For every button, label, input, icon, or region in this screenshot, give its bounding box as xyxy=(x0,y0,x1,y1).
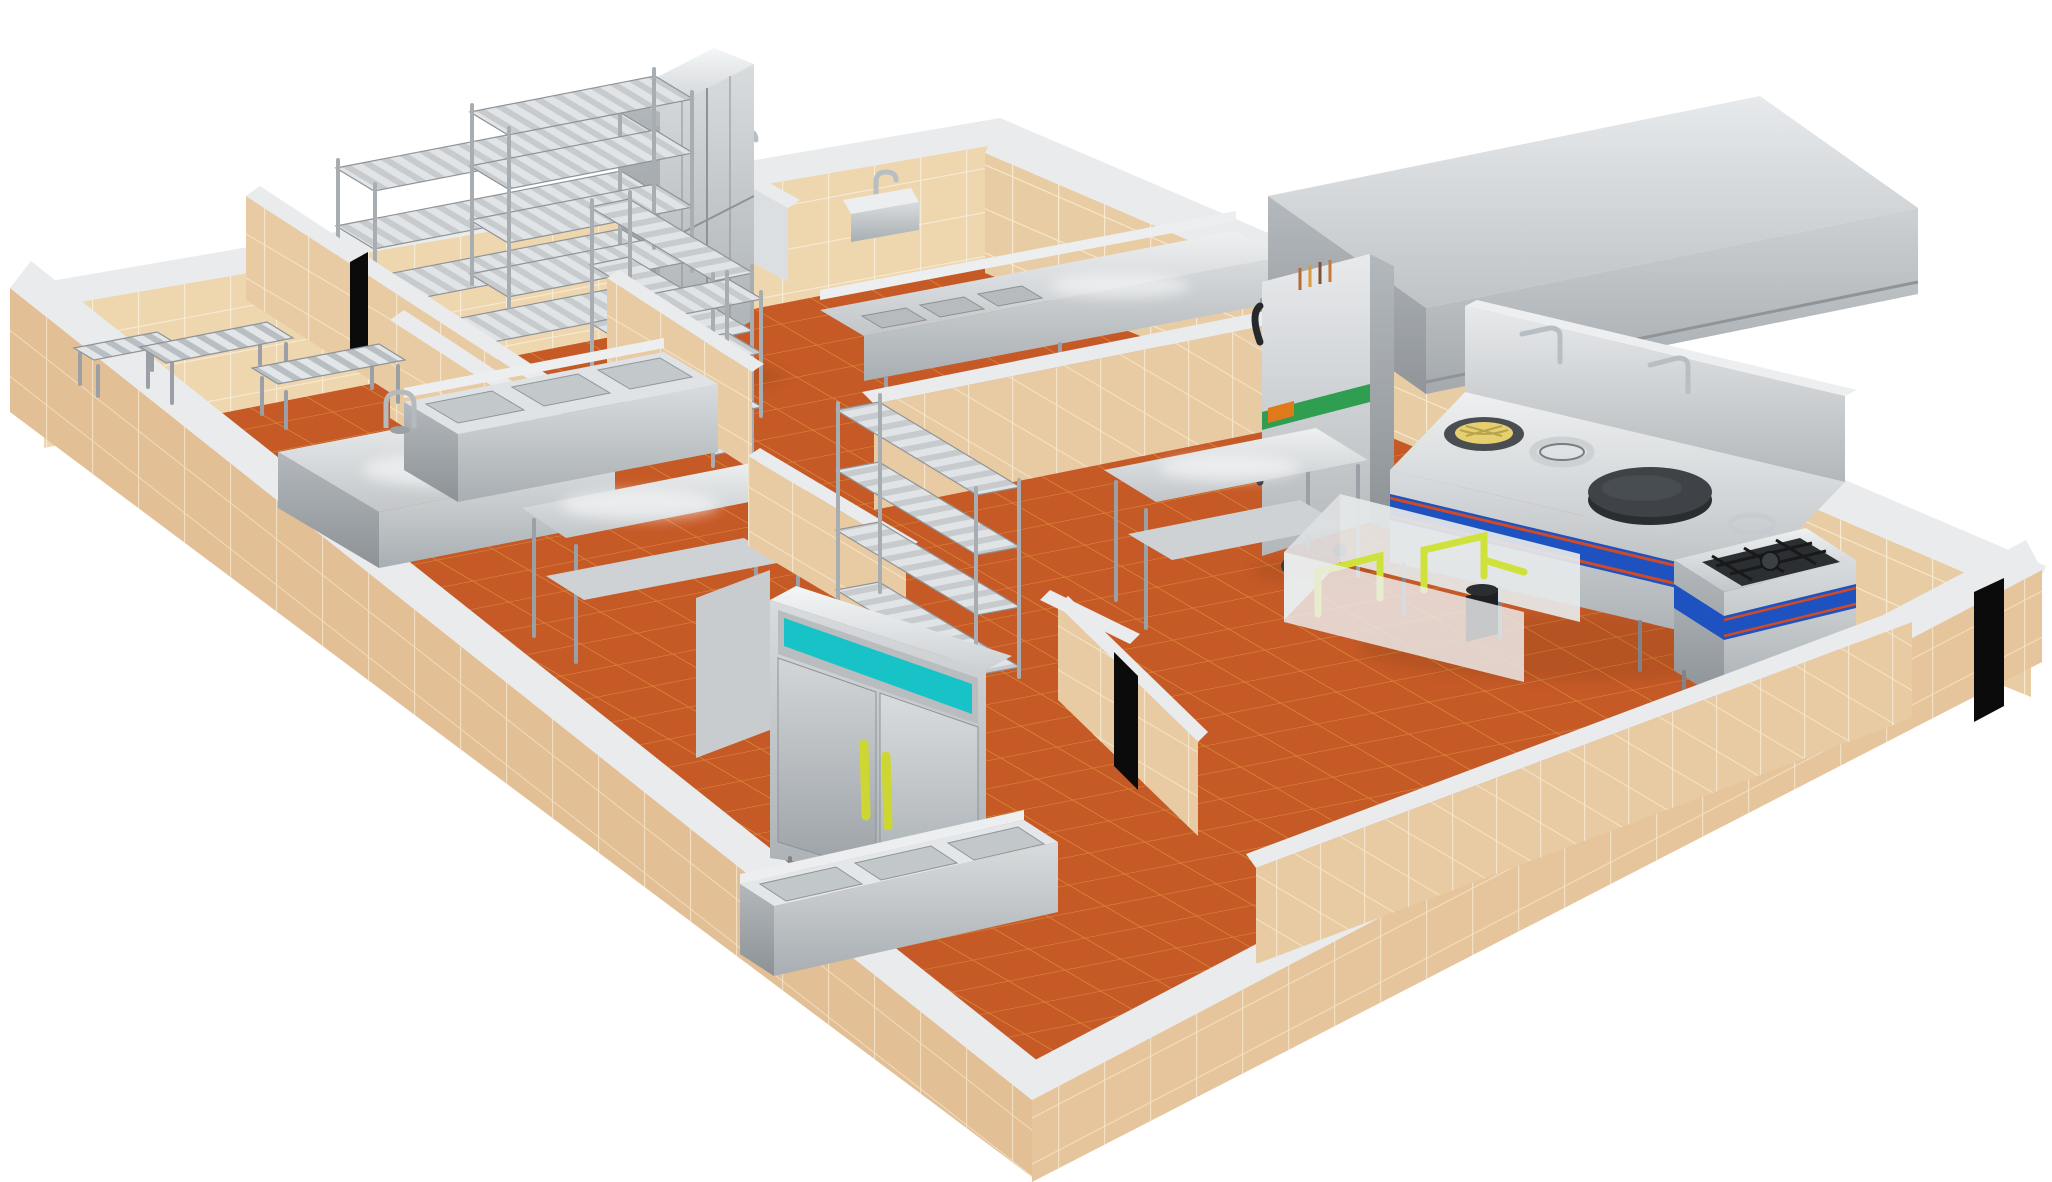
fridge-handle-left xyxy=(864,744,866,816)
doorway-gap-center xyxy=(1114,652,1138,790)
fridge-handle-right xyxy=(886,756,888,826)
doorway-gap-right xyxy=(1974,578,2004,722)
render-canvas xyxy=(0,0,2052,1182)
kitchen-3d-floorplan-render xyxy=(0,0,2052,1182)
